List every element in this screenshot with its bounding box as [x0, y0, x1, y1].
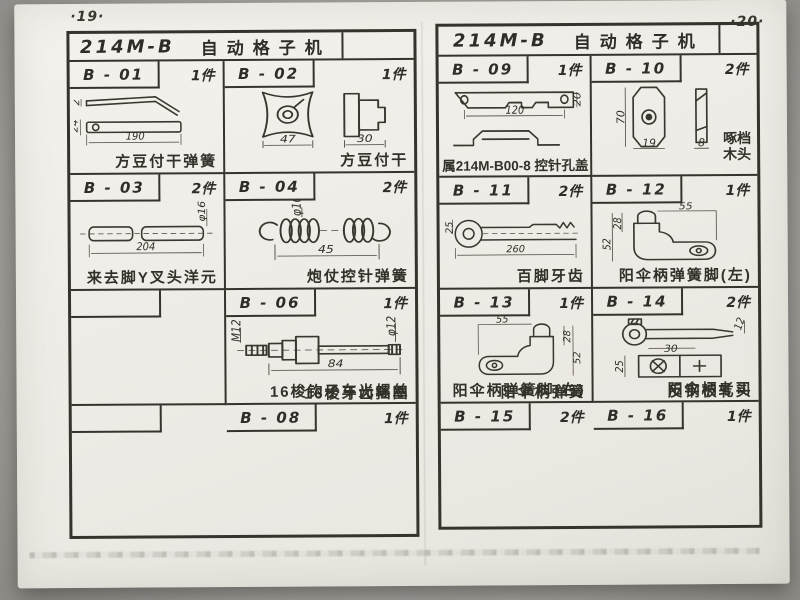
empty-id-tab	[72, 405, 162, 433]
page-number-19: ·19·	[70, 9, 104, 25]
paper-sheet: ·19· ·20· 214M-B 自动格子机 B - 01 1件	[14, 0, 790, 588]
dim-label: 260	[506, 244, 525, 255]
dim-label: 55	[496, 315, 509, 326]
part-qty: 1件	[726, 180, 750, 200]
part-cell-b10: B - 10 2件	[592, 55, 758, 177]
part-cell-b01: B - 01 1件	[70, 61, 226, 175]
part-id: B - 12	[606, 180, 667, 198]
part-qty: 1件	[191, 65, 215, 85]
dim-label: 204	[136, 241, 155, 254]
part-id-tab: B - 08	[227, 405, 317, 433]
part-id-tab: B - 10	[592, 55, 682, 83]
part-drawing-area: 2 24 190	[74, 87, 219, 153]
part-cell-b11: B - 11 2件	[439, 177, 593, 290]
parts-grid-19: B - 01 1件	[70, 60, 416, 406]
part-id-tab: B - 16	[594, 402, 684, 430]
part-id-tab: B - 09	[439, 56, 529, 84]
part-caption: 啄档木头	[719, 131, 755, 162]
part-id: B - 09	[452, 60, 513, 78]
part-id: B - 01	[83, 65, 144, 83]
dim-label: 8	[698, 136, 705, 149]
dim-label: 84	[328, 357, 344, 370]
dim-label: 28	[613, 217, 625, 230]
dim-label: 12	[732, 316, 748, 331]
part-caption: 方豆付干	[340, 149, 408, 170]
part-caption: 方豆付干弹簧	[115, 150, 217, 172]
part-drawing-b04: φ10 45	[229, 199, 410, 268]
dim-label: 47	[280, 132, 297, 145]
part-id-tab: B - 15	[441, 403, 531, 431]
table-header-20: 214M-B 自动格子机	[438, 25, 756, 57]
dim-label: 30	[357, 132, 373, 145]
part-id-tab: B - 02	[225, 61, 315, 89]
part-drawing-b03: φ16 204	[74, 200, 219, 269]
table-header-cell: 214M-B 自动格子机	[438, 25, 720, 55]
part-drawing-area: 55 28 52	[444, 315, 587, 382]
part-id-tab: B - 01	[70, 61, 160, 89]
part-id: B - 13	[453, 293, 514, 311]
dim-label: 19	[642, 137, 656, 150]
table-header-cell: 214M-B 自动格子机	[69, 32, 343, 60]
part-id-tab: B - 12	[592, 176, 682, 204]
part-drawing-b12: 55 28 52	[596, 202, 753, 267]
part-caption: 反钢板轧头	[668, 380, 753, 402]
part-id: B - 15	[454, 407, 515, 425]
dim-label: φ12	[383, 316, 398, 336]
machine-model: 214M-B	[453, 30, 548, 52]
part-drawing-area: M12 84 φ12	[230, 315, 411, 383]
part-id: B - 06	[239, 293, 300, 311]
part-cell-b02: B - 02 1件	[225, 60, 415, 174]
part-drawing-b14: 12 30 25	[597, 314, 754, 381]
part-id: B - 03	[84, 178, 145, 196]
dim-label: 30	[664, 343, 678, 355]
dim-label: 120	[505, 104, 524, 117]
part-id: B - 08	[240, 408, 301, 426]
dim-label: 20	[572, 92, 583, 107]
part-drawing-b11: 25 260	[443, 203, 586, 268]
part-drawing-area: 55 28 52	[596, 202, 753, 267]
part-id: B - 11	[453, 181, 514, 199]
part-drawing-b01: 2 24 190	[74, 87, 219, 153]
table-header-19: 214M-B 自动格子机	[69, 32, 413, 62]
part-id-tab: B - 06	[226, 290, 316, 318]
part-id-tab: B - 13	[440, 289, 530, 317]
part-id-tab: B - 14	[593, 288, 683, 316]
part-id-tab: B - 11	[439, 177, 529, 205]
dim-label: 25	[614, 360, 627, 373]
dim-label: 45	[318, 243, 334, 256]
dim-label: M12	[230, 319, 244, 342]
dim-label: 52	[572, 351, 583, 364]
part-id-tab: B - 03	[70, 174, 160, 202]
part-qty: 1件	[382, 64, 406, 84]
dim-label: 2	[74, 99, 83, 106]
part-qty: 1件	[384, 408, 408, 428]
dim-label: 25	[444, 221, 455, 234]
part-qty: 2件	[726, 292, 750, 312]
part-qty: 2件	[725, 59, 749, 79]
empty-cell	[71, 290, 227, 406]
dim-label: 55	[679, 202, 693, 212]
part-qty: 2件	[192, 178, 216, 198]
parts-grid-20: B - 09 1件	[439, 55, 759, 404]
dim-label: 52	[602, 238, 614, 250]
part-id: B - 10	[605, 59, 666, 77]
part-drawing-area: 25 260	[443, 203, 586, 268]
dim-label: φ10	[289, 199, 304, 216]
part-id: B - 16	[607, 406, 668, 424]
paper-smudge	[30, 548, 760, 558]
dim-label: φ16	[196, 200, 208, 221]
part-caption: 属214M-B00-8 控针孔盖	[442, 154, 587, 175]
part-qty: 2件	[559, 181, 583, 201]
part-id: B - 04	[239, 177, 300, 195]
dim-label: 190	[126, 131, 145, 142]
part-cell-b04: B - 04 2件	[225, 173, 415, 290]
paper-crease	[420, 22, 426, 566]
part-drawing-area: 47 30	[229, 86, 410, 152]
machine-name: 自动格子机	[574, 27, 704, 53]
machine-model: 214M-B	[80, 36, 175, 58]
part-qty: 1件	[727, 406, 751, 426]
part-qty: 1件	[559, 293, 583, 313]
part-drawing-area: 12 30 25	[597, 314, 754, 381]
part-drawing-b02: 47 30	[229, 86, 410, 152]
part-cell-b12: B - 12 1件	[592, 176, 758, 289]
part-cell-b03: B - 03 2件	[70, 174, 226, 291]
part-id-tab: B - 04	[225, 174, 315, 202]
part-drawing-area: 120 20	[443, 82, 586, 156]
catalog-table-page-20: 214M-B 自动格子机 B - 09 1件	[435, 22, 762, 530]
catalog-table-page-19: 214M-B 自动格子机 B - 01 1件	[66, 29, 419, 539]
part-caption: 炮仗控针弹簧	[307, 265, 409, 287]
part-drawing-b13: 55 28 52	[444, 315, 587, 382]
part-id: B - 02	[238, 64, 299, 82]
part-drawing-b06: M12 84 φ12	[230, 315, 411, 383]
part-id: B - 14	[606, 292, 667, 310]
part-caption: 阳伞柄弹簧	[501, 381, 586, 403]
dim-label: 70	[614, 110, 627, 124]
part-caption: 阳伞柄弹簧脚(左)	[619, 264, 752, 286]
part-drawing-b09: 120 20	[443, 82, 586, 156]
dim-label: 28	[562, 330, 573, 343]
part-qty: 1件	[558, 60, 582, 80]
machine-name: 自动格子机	[201, 33, 331, 59]
empty-id-tab	[71, 290, 161, 318]
part-drawing-area: φ16 204	[74, 200, 219, 269]
part-qty: 2件	[560, 407, 584, 427]
part-cell-b09: B - 09 1件	[439, 56, 593, 178]
part-caption: 来去脚Y叉头洋元	[87, 266, 218, 288]
part-caption: 百脚牙齿	[517, 265, 585, 286]
dim-label: 24	[74, 120, 81, 133]
part-qty: 2件	[383, 177, 407, 197]
part-caption: 16梭牙齿挡圈	[304, 382, 410, 404]
part-drawing-area: φ10 45	[229, 199, 410, 268]
part-qty: 1件	[383, 293, 407, 313]
